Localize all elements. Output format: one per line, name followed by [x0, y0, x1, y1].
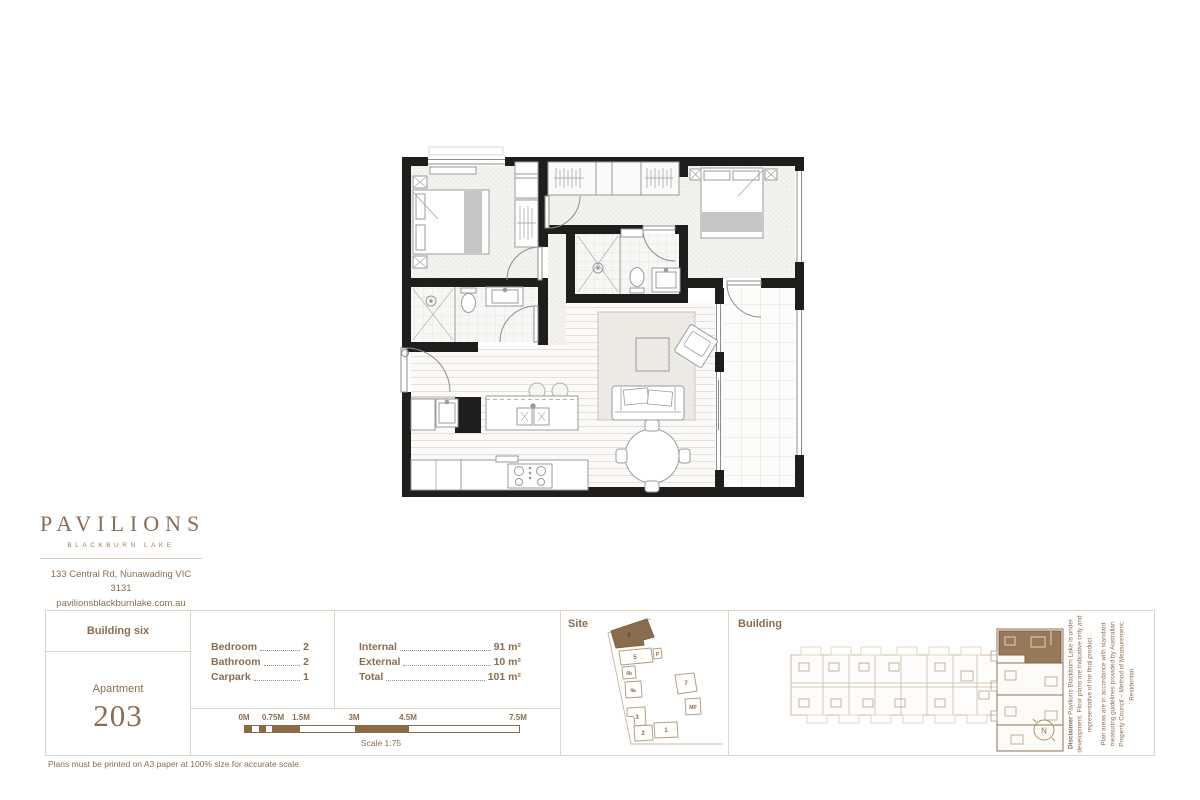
wardrobe-hanging [515, 200, 538, 247]
brand-address: 133 Central Rd, Nunawading VIC 3131 [40, 568, 202, 597]
apartment-label: Apartment [46, 683, 190, 695]
details-panel: Bedroom 2 Bathroom 2 Carpark 1 Internal … [190, 610, 561, 756]
neighbour-balcony-outline [429, 147, 503, 155]
tap [445, 400, 449, 404]
building-label: Building six [46, 611, 190, 652]
site-title: Site [568, 618, 588, 630]
area-label: Internal [359, 641, 397, 653]
feature-row: Bathroom 2 [211, 653, 309, 668]
area-label: External [359, 656, 400, 668]
wardrobe-shelves [515, 162, 538, 198]
laundry [411, 397, 458, 430]
toilet-cistern [461, 288, 476, 293]
site-label-4b: 4b [626, 671, 632, 677]
scale-tick: 0.75M [262, 713, 284, 722]
dotted-leader [386, 680, 484, 681]
feature-label: Carpark [211, 671, 251, 683]
site-label-4a: 4a [630, 688, 636, 694]
building-title: Building [738, 618, 782, 630]
dotted-leader [264, 665, 301, 666]
disclaimer-heading: Disclaimer [1068, 716, 1075, 748]
site-building-6-highlighted [611, 619, 654, 648]
brand-block: PAVILIONS BLACKBURN LAKE 133 Central Rd,… [40, 511, 202, 625]
toilet [462, 294, 476, 313]
dining-chair [645, 481, 659, 492]
bed-blanket [702, 212, 762, 232]
site-plan: 6 5 P 4b 4a 3 2 1 7 MP [561, 611, 728, 755]
feature-value: 1 [303, 671, 309, 683]
dotted-leader [254, 680, 300, 681]
feature-label: Bathroom [211, 656, 261, 668]
building-panel: N Building Disclaimer Pavilions Blackbur… [728, 610, 1155, 756]
floor-plan [396, 146, 810, 504]
area-value: 10 m² [494, 656, 521, 668]
site-label-mp: MP [689, 705, 697, 711]
area-value: 91 m² [494, 641, 521, 653]
tap [664, 268, 668, 272]
appliance [496, 456, 518, 462]
toilet-cistern [630, 288, 644, 293]
scale-caption: Scale 1:75 [244, 738, 518, 748]
window-sill [430, 167, 476, 174]
area-label: Total [359, 671, 383, 683]
dining-chair [616, 449, 627, 463]
apartment-number: 203 [46, 698, 190, 734]
print-footnote: Plans must be printed on A3 paper at 100… [48, 759, 301, 769]
dotted-leader [403, 665, 490, 666]
dotted-leader [260, 650, 300, 651]
scale-tick: 7.5M [509, 713, 527, 722]
brand-tagline: BLACKBURN LAKE [40, 542, 202, 549]
apartment-panel: Building six Apartment 203 [45, 610, 191, 756]
feature-label: Bedroom [211, 641, 257, 653]
feature-value: 2 [303, 641, 309, 653]
areas-list: Internal 91 m² External 10 m² Total 101 … [359, 638, 521, 683]
tap [503, 288, 507, 292]
scale-tick: 3M [348, 713, 359, 722]
disclaimer-line2: Plan areas are in accordance with standa… [1099, 615, 1136, 753]
divider [40, 558, 202, 559]
dining-table [625, 429, 679, 483]
scale-tick: 1.5M [292, 713, 310, 722]
dotted-leader [400, 650, 491, 651]
scale-tick: 4.5M [399, 713, 417, 722]
area-row: Total 101 m² [359, 668, 521, 683]
feature-value: 2 [303, 656, 309, 668]
disclaimer-paragraph: Disclaimer Pavilions Blackburn Lake is u… [1067, 615, 1095, 753]
dining-chair [679, 449, 690, 463]
scale-tick: 0M [238, 713, 249, 722]
corridor-floor [548, 225, 566, 345]
area-row: Internal 91 m² [359, 638, 521, 653]
disclaimer: Disclaimer Pavilions Blackburn Lake is u… [1081, 611, 1127, 756]
site-panel: 6 5 P 4b 4a 3 2 1 7 MP Site [560, 610, 729, 756]
feature-row: Bedroom 2 [211, 638, 309, 653]
divider [191, 708, 560, 709]
brand-logo: PAVILIONS [40, 511, 202, 537]
balcony-floor [723, 288, 795, 487]
brand-website: pavilionsblackburnlake.com.au [40, 597, 202, 611]
tap [531, 404, 535, 408]
compass-n: N [1041, 727, 1047, 736]
scale-bar [244, 725, 520, 733]
walkin-robe [548, 162, 679, 195]
feature-row: Carpark 1 [211, 668, 309, 683]
dining-chair [645, 420, 659, 431]
features-list: Bedroom 2 Bathroom 2 Carpark 1 [211, 638, 309, 683]
shelf [621, 229, 643, 237]
area-value: 101 m² [488, 671, 521, 683]
bed-blanket [464, 191, 482, 253]
divider [334, 611, 335, 708]
toilet [630, 268, 644, 287]
area-row: External 10 m² [359, 653, 521, 668]
building-west-wing [791, 647, 999, 723]
washer [411, 399, 435, 430]
